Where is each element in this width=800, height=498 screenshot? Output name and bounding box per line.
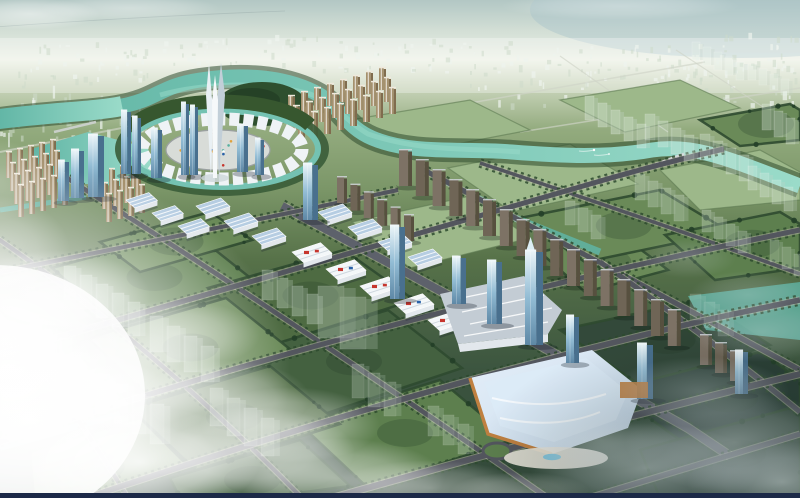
distant-building: [524, 58, 528, 62]
distant-building: [127, 55, 130, 59]
distant-building: [147, 73, 149, 78]
distant-building: [598, 69, 600, 74]
ghost-tower: [578, 208, 588, 232]
tan-roof: [350, 99, 357, 101]
tan-stripe: [352, 100, 353, 126]
ghost-tower: [714, 217, 723, 239]
ghost-tower-side: [633, 119, 637, 141]
slab-side: [627, 282, 631, 317]
ghost-tower-side: [601, 217, 606, 239]
distant-building: [63, 62, 67, 66]
hall-red-sign: [338, 268, 343, 271]
distant-building: [47, 48, 51, 55]
distant-building: [126, 62, 129, 66]
distant-building: [665, 75, 667, 81]
distant-building: [729, 36, 733, 41]
ghost-tower: [443, 415, 454, 445]
tan-residential-tower: [350, 99, 357, 126]
distant-building: [628, 67, 631, 70]
hall-red-sign: [304, 251, 309, 254]
distant-building: [206, 61, 209, 63]
distant-building: [547, 60, 551, 64]
tan-roof: [319, 97, 326, 99]
hall-red-sign: [440, 319, 445, 322]
distant-building: [197, 61, 201, 66]
ghost-tower-side: [366, 299, 378, 349]
distant-building: [339, 41, 343, 44]
slab-roof: [350, 184, 360, 185]
ghost-tower-side: [789, 81, 793, 95]
distant-building: [510, 61, 514, 66]
tan-roof: [371, 81, 378, 83]
tan-roof: [332, 93, 339, 95]
distant-building: [271, 53, 274, 60]
slab-side: [408, 152, 412, 187]
ghost-tower: [307, 294, 318, 324]
distant-building: [323, 69, 326, 74]
bottom-border-strip: [0, 493, 800, 498]
slab-front: [517, 220, 526, 256]
distant-building: [790, 68, 794, 73]
tree-clump: [711, 126, 716, 131]
distant-building: [303, 37, 307, 41]
tan-residential-tower: [337, 103, 344, 130]
tan-roof: [139, 184, 145, 186]
tan-stripe: [360, 86, 361, 110]
ghost-tower: [770, 240, 779, 262]
slab-front: [617, 280, 626, 316]
distant-building: [214, 40, 219, 43]
slab-roof: [449, 179, 462, 180]
tan-side: [368, 97, 370, 122]
slab-side: [425, 162, 429, 197]
tree-clump: [776, 104, 781, 109]
distant-building: [657, 59, 661, 62]
tan-roof: [43, 153, 49, 155]
ghost-tower: [384, 382, 396, 416]
slab-front: [567, 250, 576, 286]
slab-side: [442, 172, 446, 207]
distant-building: [182, 53, 184, 57]
distant-building: [674, 69, 679, 73]
distant-building: [404, 44, 406, 49]
ghost-tower: [277, 278, 288, 308]
distant-building: [340, 54, 343, 59]
slab-roof: [517, 219, 530, 220]
distant-building: [590, 71, 592, 77]
distant-building: [139, 71, 142, 73]
tan-stripe: [303, 92, 304, 114]
distant-building: [258, 54, 260, 58]
distant-building: [501, 63, 505, 67]
distant-building: [543, 104, 546, 108]
slab-side: [576, 252, 580, 287]
slab-side: [559, 242, 563, 277]
tan-stripe: [316, 88, 317, 110]
boat: [608, 153, 610, 155]
tan-roof: [28, 145, 34, 147]
distant-building: [31, 69, 33, 73]
slab-front: [651, 300, 660, 336]
slab-front: [584, 260, 593, 296]
distant-building: [264, 50, 267, 53]
distant-building: [282, 58, 286, 61]
distant-building: [474, 64, 476, 69]
tan-stripe: [386, 78, 387, 102]
distant-building: [3, 133, 6, 137]
distant-building: [723, 45, 725, 47]
distant-building: [199, 43, 203, 47]
distant-building: [654, 78, 658, 81]
tan-stripe: [326, 108, 327, 134]
ghost-tower: [368, 373, 380, 407]
slab-roof: [668, 309, 681, 310]
hall-sign: [417, 301, 421, 304]
ghost-tower: [648, 181, 658, 207]
tree-clump: [430, 343, 434, 347]
distant-building: [405, 50, 409, 53]
distant-building: [700, 78, 703, 82]
distant-building: [9, 130, 13, 137]
distant-building: [39, 47, 41, 54]
distant-building: [520, 81, 524, 88]
distant-building: [236, 61, 238, 63]
tree-clump: [292, 335, 298, 341]
slab-roof: [567, 249, 580, 250]
distant-building: [686, 77, 689, 80]
ghost-tower: [739, 155, 749, 181]
slab-side: [344, 179, 347, 204]
distant-building: [80, 59, 84, 62]
distant-building: [290, 44, 294, 48]
distant-building: [133, 70, 137, 76]
distant-building: [116, 66, 119, 70]
distant-building: [511, 103, 515, 110]
distant-building: [21, 136, 24, 142]
distant-building: [84, 77, 88, 83]
distant-building: [637, 52, 639, 58]
distant-building: [43, 48, 46, 53]
slab-roof: [634, 289, 647, 290]
tan-roof: [366, 71, 373, 73]
distant-building: [180, 45, 183, 50]
tan-roof: [389, 87, 396, 89]
ghost-tower: [774, 111, 783, 137]
distant-building: [185, 55, 187, 57]
ghost-tower: [781, 79, 789, 95]
distant-building: [53, 86, 55, 99]
slab-roof: [416, 159, 429, 160]
ghost-tower: [770, 74, 778, 90]
distant-building: [624, 61, 627, 66]
distant-building: [724, 50, 727, 52]
distant-building: [770, 44, 773, 50]
distant-building: [579, 49, 582, 53]
tree-clump: [450, 358, 456, 364]
tree-clump: [466, 401, 471, 406]
distant-building: [781, 54, 783, 60]
slab-side: [509, 212, 513, 247]
tan-residential-tower: [324, 107, 331, 134]
slab-front: [399, 150, 408, 186]
tan-residential-tower: [363, 95, 370, 122]
slab-front: [550, 240, 559, 276]
tree-clump: [791, 218, 797, 224]
slab-roof: [377, 199, 387, 200]
distant-building: [132, 57, 136, 60]
tree-clump: [243, 233, 248, 238]
slab-side: [543, 232, 547, 267]
distant-building: [539, 80, 542, 86]
tan-residential-tower: [376, 91, 383, 118]
distant-building: [173, 63, 175, 66]
ghost-tower-side: [744, 64, 748, 80]
cloud-puff: [90, 300, 260, 370]
distant-building: [369, 66, 371, 69]
distant-building: [498, 71, 501, 74]
distant-building: [338, 67, 342, 69]
distant-building: [312, 61, 316, 67]
tower-side: [186, 104, 189, 175]
distant-building: [76, 53, 79, 58]
distant-building: [141, 60, 144, 65]
ghost-tower: [458, 424, 469, 454]
tan-roof: [345, 89, 352, 91]
tan-roof: [288, 95, 295, 97]
distant-building: [99, 65, 101, 71]
tan-roof: [327, 83, 334, 85]
distant-building: [130, 50, 132, 55]
distant-building: [636, 68, 639, 72]
distant-building: [410, 44, 413, 48]
distant-building: [789, 96, 791, 100]
tree-clump: [538, 211, 544, 217]
distant-building: [635, 45, 639, 49]
distant-building: [268, 40, 272, 45]
slab-front: [416, 160, 425, 196]
distant-building: [493, 67, 496, 69]
distant-building: [591, 90, 593, 93]
ghost-tower-side: [747, 233, 751, 253]
tan-stripe: [368, 72, 369, 94]
slab-roof: [601, 269, 614, 270]
tan-roof: [54, 150, 60, 152]
tan-stripe: [391, 88, 392, 114]
ghost-tower: [635, 174, 645, 200]
slab-side: [459, 182, 463, 217]
distant-building: [498, 100, 501, 108]
distant-building: [191, 57, 196, 62]
tan-roof: [376, 91, 383, 93]
distant-building: [206, 45, 208, 49]
tan-stripe: [381, 68, 382, 90]
distant-building: [553, 54, 556, 57]
cloud-puff: [530, 410, 670, 470]
tan-roof: [324, 107, 331, 109]
distant-building: [275, 35, 279, 41]
ghost-tower: [352, 364, 364, 398]
cloud-puff: [200, 387, 380, 463]
distant-building: [38, 60, 42, 65]
distant-building: [143, 75, 146, 81]
slab-side: [384, 201, 387, 226]
tan-residential-tower: [389, 87, 396, 114]
tan-side: [342, 105, 344, 130]
distant-building: [282, 46, 284, 51]
distant-building: [188, 57, 192, 62]
distant-building: [668, 74, 670, 77]
tan-roof: [314, 87, 321, 89]
slab-side: [357, 186, 360, 211]
ghost-tower: [772, 180, 781, 204]
slab-side: [475, 192, 479, 227]
distant-building: [545, 65, 549, 70]
distant-building: [484, 73, 488, 77]
distant-building: [51, 75, 54, 77]
ghost-tower: [637, 124, 646, 148]
distant-building: [519, 65, 523, 72]
distant-building: [204, 41, 208, 44]
distant-building: [568, 70, 570, 77]
ghost-tower: [565, 201, 575, 225]
distant-building: [543, 82, 545, 89]
tan-side: [355, 101, 357, 126]
distant-building: [204, 51, 206, 55]
distant-building: [688, 67, 690, 71]
ghost-tower: [292, 286, 303, 316]
distant-building: [724, 38, 728, 41]
distant-building: [96, 42, 99, 48]
distant-building: [36, 67, 39, 70]
tower-side: [195, 107, 198, 175]
tower-side: [127, 112, 131, 174]
distant-building: [89, 82, 92, 86]
slab-roof: [483, 199, 496, 200]
slab-roof: [500, 209, 513, 210]
ghost-tower: [714, 52, 722, 70]
plaza-pavilion: [227, 144, 230, 147]
distant-building: [398, 47, 402, 51]
distant-building: [777, 37, 780, 43]
distant-building: [622, 49, 625, 54]
distant-building: [600, 62, 602, 66]
distant-building: [222, 40, 224, 45]
tan-roof: [363, 95, 370, 97]
slab-front: [601, 270, 610, 306]
slab-roof: [364, 191, 374, 192]
distant-building: [145, 49, 148, 56]
hall-sign: [383, 284, 387, 287]
distant-building: [608, 69, 612, 71]
distant-building: [791, 36, 793, 43]
distant-building: [786, 66, 790, 72]
distant-building: [75, 79, 78, 86]
tower-side: [261, 140, 264, 175]
distant-building: [25, 74, 27, 80]
distant-building: [287, 39, 291, 41]
distant-building: [66, 45, 71, 47]
tan-roof: [50, 139, 56, 141]
distant-building: [793, 72, 796, 74]
distant-building: [557, 48, 559, 53]
distant-building: [751, 103, 755, 108]
tan-roof: [337, 103, 344, 105]
distant-building: [587, 61, 589, 63]
distant-building: [345, 46, 348, 51]
distant-building: [668, 48, 671, 53]
distant-building: [461, 47, 463, 49]
plaza-pavilion: [222, 153, 225, 156]
distant-building: [485, 85, 487, 90]
distant-building: [163, 49, 167, 54]
slab-side: [610, 272, 614, 307]
tree-clump: [754, 142, 759, 147]
distant-building: [116, 73, 118, 75]
distant-building: [450, 49, 453, 53]
slab-side: [660, 302, 664, 337]
distant-building: [581, 88, 584, 90]
tan-roof: [379, 67, 386, 69]
ghost-tower: [738, 231, 747, 253]
tower-side: [461, 258, 466, 304]
distant-building: [97, 77, 99, 82]
slab-side: [492, 202, 496, 237]
slab-front: [350, 185, 357, 211]
distant-building: [316, 36, 318, 42]
distant-building: [767, 59, 771, 61]
tan-stripe: [365, 96, 366, 122]
tree-clump: [792, 105, 795, 108]
distant-building: [124, 56, 126, 60]
ghost-tower: [703, 47, 711, 65]
distant-building: [777, 46, 779, 50]
distant-building: [432, 58, 434, 62]
aerial-render-canvas: [0, 0, 800, 498]
plaza-pavilion: [230, 140, 233, 143]
tan-roof: [353, 75, 360, 77]
slab-side: [593, 262, 597, 297]
slab-front: [449, 180, 458, 216]
distant-building: [507, 50, 511, 55]
tower-side: [158, 130, 162, 178]
tan-stripe: [334, 94, 335, 118]
slab-roof: [433, 169, 446, 170]
tan-roof: [358, 85, 365, 87]
ghost-tower: [713, 141, 723, 167]
ghost-tower: [340, 297, 366, 349]
plaza-pavilion: [222, 164, 225, 167]
river-wide-left: [0, 106, 122, 120]
distant-building: [594, 71, 596, 73]
tan-stripe: [52, 140, 53, 166]
tower-side: [312, 165, 318, 220]
tan-roof: [109, 168, 115, 170]
slab-roof: [533, 229, 546, 230]
ghost-tower: [760, 173, 769, 197]
distant-building: [430, 44, 433, 46]
distant-building: [100, 62, 103, 65]
distant-building: [226, 38, 228, 45]
ghost-tower: [645, 114, 655, 140]
slab-side: [371, 194, 374, 219]
ghost-tower: [591, 215, 601, 239]
distant-building: [282, 63, 285, 68]
distant-building: [429, 66, 431, 72]
ghost-tower: [585, 96, 594, 120]
slab-roof: [391, 206, 401, 207]
distant-building: [446, 58, 450, 63]
tree-clump: [748, 109, 752, 113]
